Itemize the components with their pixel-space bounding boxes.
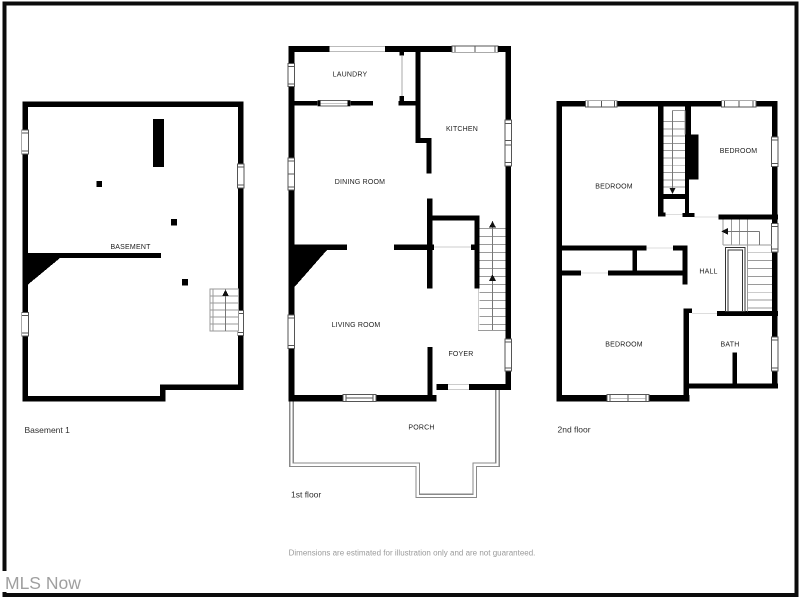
svg-text:DINING ROOM: DINING ROOM — [335, 179, 385, 186]
svg-text:BEDROOM: BEDROOM — [605, 342, 643, 349]
svg-text:Basement 1: Basement 1 — [25, 425, 71, 435]
svg-text:MLS Now: MLS Now — [5, 573, 81, 593]
svg-text:BATH: BATH — [721, 342, 740, 349]
svg-text:BEDROOM: BEDROOM — [720, 148, 758, 155]
svg-text:LAUNDRY: LAUNDRY — [333, 72, 368, 79]
svg-text:1st floor: 1st floor — [291, 490, 321, 500]
svg-text:KITCHEN: KITCHEN — [446, 126, 478, 133]
svg-text:PORCH: PORCH — [408, 425, 434, 432]
svg-text:2nd floor: 2nd floor — [558, 425, 591, 435]
svg-text:Dimensions are estimated for i: Dimensions are estimated for illustratio… — [289, 549, 536, 558]
svg-text:FOYER: FOYER — [448, 351, 473, 358]
svg-text:BEDROOM: BEDROOM — [595, 184, 633, 191]
svg-text:BASEMENT: BASEMENT — [110, 244, 151, 251]
svg-text:HALL: HALL — [699, 269, 717, 276]
svg-text:LIVING ROOM: LIVING ROOM — [332, 322, 381, 329]
